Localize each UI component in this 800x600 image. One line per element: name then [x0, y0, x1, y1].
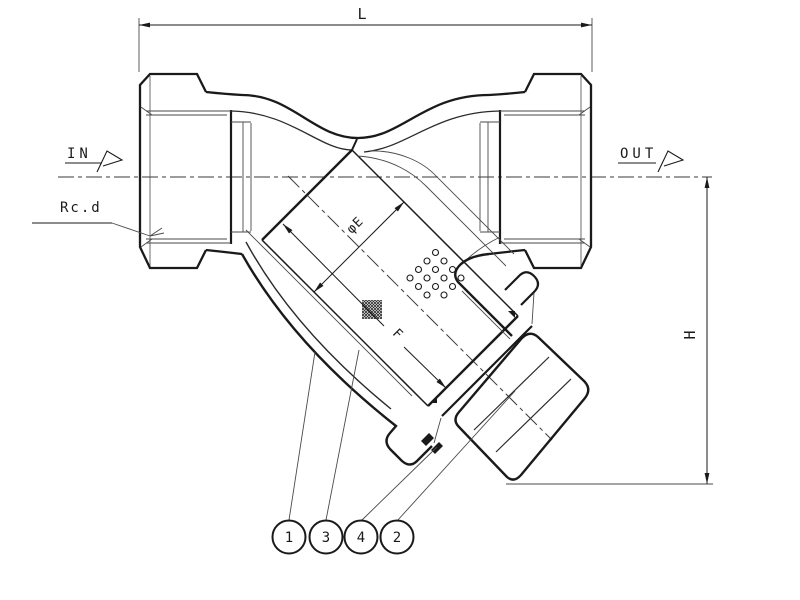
thread-label: Rc.d	[60, 200, 102, 216]
thread-callout: Rc.d	[32, 200, 164, 236]
balloon-3-number: 3	[322, 530, 330, 546]
screen-retainer-face	[442, 326, 532, 416]
balloon-1-leader	[289, 352, 315, 520]
thread-leader-line	[112, 223, 150, 236]
out-label: OUT	[620, 146, 657, 162]
dim-H-label: H	[681, 330, 699, 339]
centerline-branch-axis	[288, 176, 552, 440]
left-top-shelf	[206, 92, 242, 95]
body-lower-left-wall	[242, 254, 432, 465]
balloon-3: 3	[310, 521, 343, 554]
dim-F-line-lower	[404, 347, 446, 388]
dimension-screen-length: F	[283, 224, 446, 388]
thread-leader-tip	[150, 228, 164, 236]
balloon-2: 2	[381, 521, 414, 554]
drawing-sheet: L H φE F IN OUT Rc.d	[0, 0, 800, 600]
left-port	[140, 74, 251, 268]
balloon-1-number: 1	[285, 530, 293, 546]
balloon-1: 1	[273, 521, 306, 554]
dim-F-label: F	[389, 326, 406, 343]
dim-phiE-label: φE	[344, 214, 367, 237]
body-top-outer-curve	[242, 95, 489, 138]
cap-step-line-2	[496, 379, 571, 452]
balloon-callouts: 1 3 4 2	[273, 521, 414, 554]
body-valley-edge	[352, 139, 357, 150]
balloon-2-leader	[397, 391, 515, 521]
in-flow-flag-icon	[97, 151, 122, 172]
right-bottom-shelf	[489, 250, 525, 254]
body-top-inner-curve	[231, 111, 500, 152]
flow-in: IN	[65, 146, 122, 172]
cap-step-line-1	[474, 357, 549, 430]
dimension-H: H	[506, 177, 713, 484]
balloon-4-number: 4	[357, 530, 365, 546]
out-flow-flag-icon	[658, 151, 683, 172]
right-top-shelf	[489, 92, 525, 95]
screen-mesh-sample	[362, 300, 382, 319]
cap-outline	[456, 334, 589, 480]
balloon-3-leader	[326, 350, 359, 520]
gasket-marks	[421, 433, 443, 454]
flange-upper-hook	[505, 272, 538, 305]
in-label: IN	[67, 146, 92, 162]
y-strainer-sectional-drawing: L H φE F IN OUT Rc.d	[0, 0, 800, 600]
dimension-L: L	[139, 5, 592, 72]
body-lower-left-inner-wall	[246, 242, 391, 409]
left-bottom-shelf	[206, 250, 242, 254]
balloon-4: 4	[345, 521, 378, 554]
flow-out: OUT	[618, 146, 683, 172]
balloon-2-number: 2	[393, 530, 401, 546]
dim-L-label: L	[357, 5, 366, 23]
body-upper-right-wall	[455, 254, 512, 336]
